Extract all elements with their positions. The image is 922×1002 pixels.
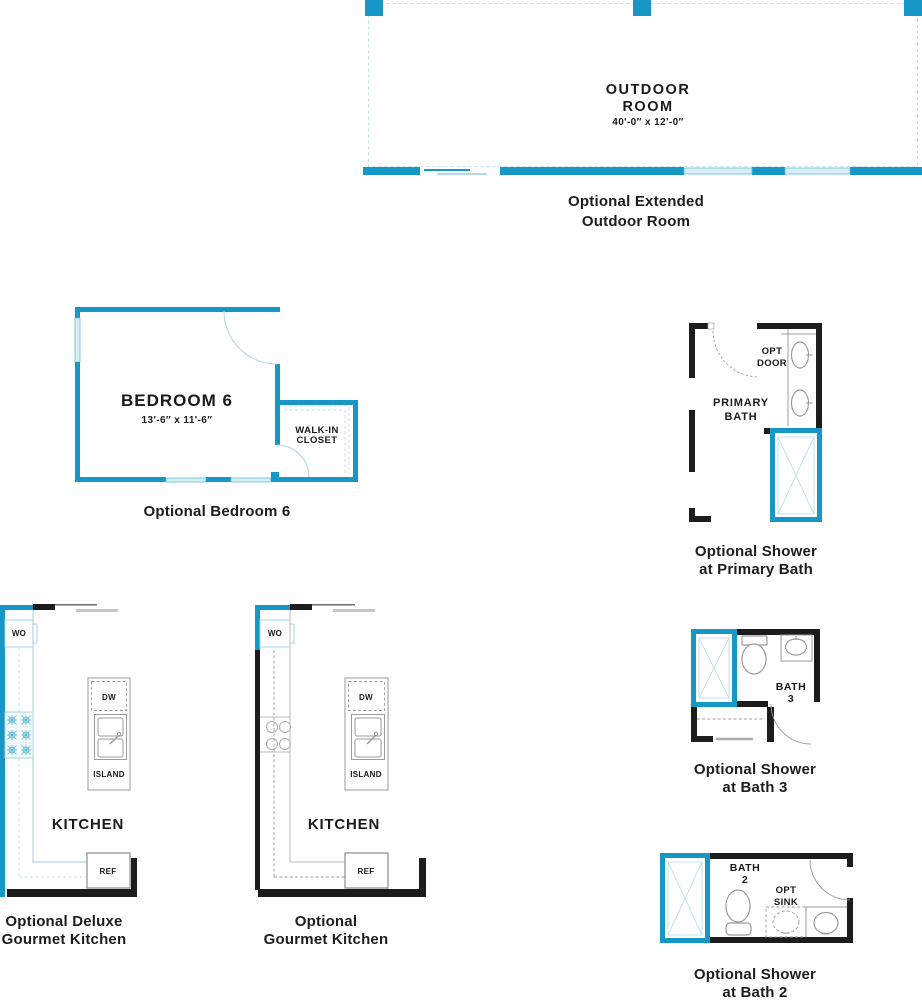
- refrigerator: REF: [87, 853, 130, 888]
- sink: [814, 913, 838, 934]
- gourmet-kitchen-caption: Gourmet Kitchen: [264, 931, 389, 948]
- opt-door-swing: [713, 331, 759, 377]
- kitchen-island: DW ISLAND: [345, 678, 388, 790]
- deluxe-kitchen-caption: Gourmet Kitchen: [2, 931, 127, 948]
- opt-sink-label: OPT: [776, 885, 797, 896]
- wall-oven-label: WO: [268, 629, 282, 638]
- bath3-shower: [694, 632, 735, 705]
- bath2-caption: Optional Shower: [694, 966, 816, 983]
- primary-bath-label: BATH: [725, 411, 758, 423]
- bedroom-door-swing: [224, 311, 277, 364]
- primary-bath-plan: OPT DOOR PRIMARY BATH Optional Shower at…: [689, 323, 822, 578]
- wall-oven: WO: [5, 620, 37, 647]
- opt-sink-label: SINK: [774, 897, 798, 908]
- bath2-label: BATH: [730, 862, 760, 874]
- gourmet-kitchen-caption: Optional: [295, 913, 357, 930]
- island-label: ISLAND: [350, 770, 382, 779]
- toilet: [726, 890, 751, 935]
- outdoor-room-caption: Optional Extended: [568, 193, 704, 210]
- primary-bath-caption: Optional Shower: [695, 543, 817, 560]
- bath2-plan: BATH 2 OPT SINK Optional Shower at Bath …: [663, 853, 854, 1001]
- bath2-vanity: [766, 907, 847, 937]
- kitchen-title: KITCHEN: [308, 816, 380, 833]
- window: [785, 168, 850, 174]
- bath2-caption: at Bath 2: [722, 984, 787, 1001]
- refrigerator: REF: [345, 853, 388, 888]
- bedroom6-title: BEDROOM 6: [121, 391, 233, 410]
- cooktop: [5, 712, 33, 758]
- floor-plan-options-svg: OUTDOOR ROOM 40'-0″ x 12'-0″ Optional Ex…: [0, 0, 922, 1002]
- opt-door-label: DOOR: [757, 358, 787, 369]
- bath2-shower: [663, 856, 708, 941]
- deluxe-kitchen-caption: Optional Deluxe: [5, 913, 122, 930]
- deluxe-kitchen-plan: WO DW ISLAND KITCHEN REF O: [0, 604, 137, 948]
- door-swing: [771, 704, 811, 744]
- kitchen-island: DW ISLAND: [88, 678, 130, 790]
- outdoor-room-posts: [365, 0, 922, 16]
- outdoor-room-title: ROOM: [622, 99, 673, 115]
- sink: [781, 635, 812, 661]
- bath3-caption: Optional Shower: [694, 761, 816, 778]
- toilet: [742, 636, 767, 674]
- bath3-caption: at Bath 3: [722, 779, 787, 796]
- primary-bath-label: PRIMARY: [713, 397, 769, 409]
- refrigerator-label: REF: [358, 867, 375, 876]
- bath3-label: BATH: [776, 681, 806, 693]
- sink: [792, 342, 809, 368]
- primary-bath-caption: at Primary Bath: [699, 561, 813, 578]
- closet-door-swing: [277, 445, 309, 477]
- primary-bath-shower: [773, 431, 820, 520]
- bedroom6-dimensions: 13'-6″ x 11'-6″: [142, 415, 213, 426]
- bath3-plan: BATH 3 Optional Shower at Bath 3: [691, 629, 820, 796]
- wall-oven-label: WO: [12, 629, 26, 638]
- window: [75, 318, 80, 362]
- refrigerator-label: REF: [100, 867, 117, 876]
- window: [166, 478, 206, 482]
- bedroom6-caption: Optional Bedroom 6: [144, 503, 291, 520]
- outdoor-room-caption: Outdoor Room: [582, 213, 690, 230]
- wall-oven: WO: [260, 620, 294, 647]
- primary-bath-vanity: [781, 329, 816, 426]
- floor-plan-options-sheet: OUTDOOR ROOM 40'-0″ x 12'-0″ Optional Ex…: [0, 0, 922, 1002]
- bath3-label: 3: [788, 693, 794, 705]
- sink: [792, 390, 809, 416]
- window: [231, 478, 271, 482]
- island-label: ISLAND: [93, 770, 125, 779]
- dishwasher-label: DW: [359, 693, 373, 702]
- gourmet-kitchen-plan: WO DW ISLAND KITCHEN REF O: [255, 604, 426, 948]
- bath2-label: 2: [742, 874, 748, 886]
- outdoor-room-title: OUTDOOR: [606, 82, 691, 98]
- window: [684, 168, 752, 174]
- outdoor-room-dimensions: 40'-0″ x 12'-0″: [612, 117, 683, 128]
- outdoor-room-plan: OUTDOOR ROOM 40'-0″ x 12'-0″ Optional Ex…: [363, 0, 922, 230]
- door-swing: [810, 860, 850, 900]
- cooktop: [260, 717, 291, 752]
- outdoor-room-walls: [363, 167, 922, 175]
- gourmet-kitchen-walls: [255, 604, 426, 897]
- walkin-closet-label: CLOSET: [297, 435, 338, 446]
- opt-door-label: OPT: [762, 346, 783, 357]
- dishwasher-label: DW: [102, 693, 116, 702]
- opt-sink: [773, 911, 799, 933]
- bedroom6-plan: BEDROOM 6 13'-6″ x 11'-6″ WALK-IN CLOSET…: [75, 307, 358, 520]
- kitchen-title: KITCHEN: [52, 816, 124, 833]
